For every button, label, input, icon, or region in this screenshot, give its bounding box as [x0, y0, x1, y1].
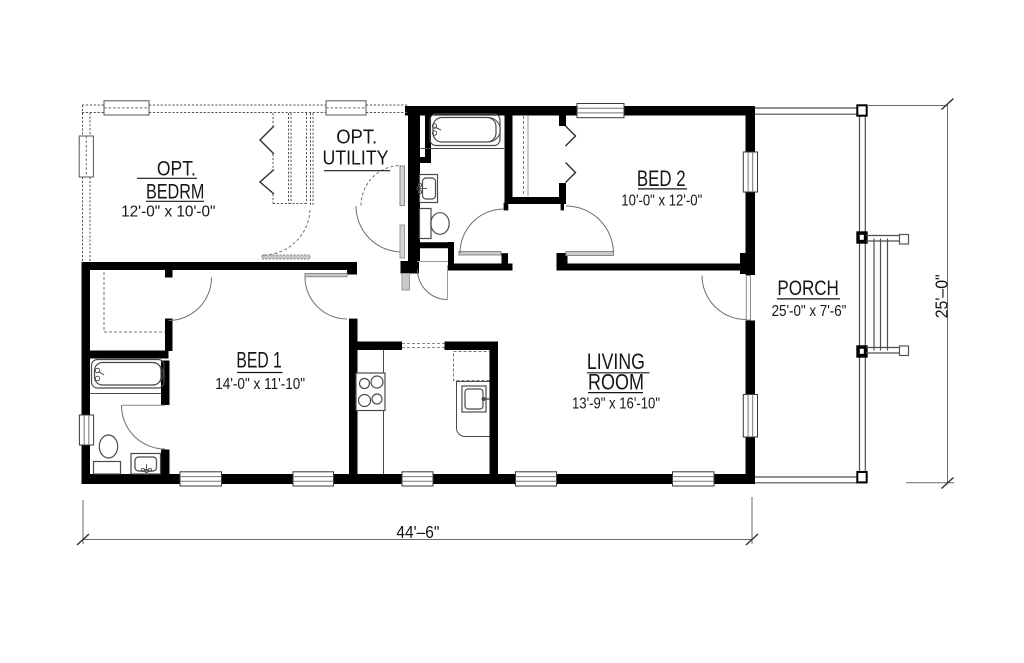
svg-text:25'-0" x 7'-6": 25'-0" x 7'-6"	[772, 303, 847, 320]
svg-text:14'-0" x 11'-10": 14'-0" x 11'-10"	[215, 376, 305, 393]
svg-text:PORCH: PORCH	[777, 276, 839, 300]
svg-text:BED 1: BED 1	[236, 349, 281, 373]
svg-text:UTILITY: UTILITY	[323, 148, 389, 170]
svg-text:BEDRM: BEDRM	[146, 179, 204, 203]
svg-text:13'-9" x 16'-10": 13'-9" x 16'-10"	[572, 395, 660, 412]
svg-text:OPT.: OPT.	[157, 157, 196, 181]
svg-text:25'–0": 25'–0"	[931, 274, 951, 318]
svg-text:44'–6": 44'–6"	[396, 522, 439, 542]
svg-text:BED 2: BED 2	[637, 167, 686, 192]
svg-text:OPT.: OPT.	[336, 127, 377, 149]
svg-text:12'-0" x 10'-0": 12'-0" x 10'-0"	[121, 203, 215, 220]
svg-text:ROOM: ROOM	[588, 371, 644, 395]
svg-text:10'-0" x 12'-0": 10'-0" x 12'-0"	[621, 193, 702, 210]
